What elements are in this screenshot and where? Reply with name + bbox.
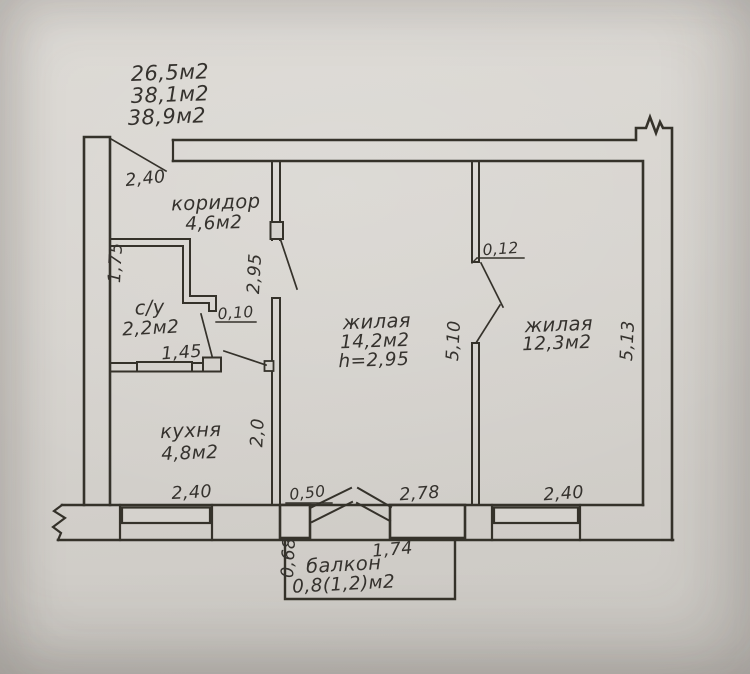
dim-entry-width: 2,40 <box>124 167 166 191</box>
kitchen-door-leaf <box>224 351 266 365</box>
living2-door-leaf-a <box>481 263 503 307</box>
living2-area: 12,3м2 <box>522 332 592 355</box>
dim-living1-depth: 5,10 <box>443 320 465 362</box>
top-wall-outer <box>173 117 672 540</box>
dim-bathroom-left: 1,75 <box>105 242 127 284</box>
dim-kitchen-depth: 2,0 <box>247 418 268 448</box>
living2-door-leaf-b <box>476 305 500 343</box>
dim-balcony-width: 1,74 <box>371 538 413 561</box>
living2-window-sill <box>494 508 578 524</box>
bathroom-door-leaf <box>201 314 212 356</box>
dim-partition-012: 0,12 <box>482 239 519 259</box>
floor-plan-drawing: 26,5м2 38,1м2 38,9м2 коридор 4,6м2 с/у 2… <box>0 0 750 674</box>
bathroom-name: с/у <box>134 295 165 320</box>
kitchen-name: кухня <box>160 418 222 443</box>
partition-right-upper <box>472 161 479 262</box>
living1-ceiling-height: h=2,95 <box>338 349 410 372</box>
dim-bathroom-width: 1,45 <box>161 342 203 365</box>
kitchen-window-sill <box>122 508 210 524</box>
dim-kitchen-window: 2,40 <box>171 482 213 504</box>
balcony-pier-left <box>280 505 310 538</box>
dim-living2-window: 2,40 <box>543 483 585 506</box>
dim-partition-010: 0,10 <box>217 303 254 323</box>
dim-living2-depth: 5,13 <box>617 320 639 362</box>
dim-balcony-block: 2,78 <box>399 483 441 506</box>
entry-door-leaf <box>111 139 166 171</box>
balcony-pier-right <box>390 505 465 538</box>
partition-mid-lower <box>272 298 280 505</box>
corridor-name: коридор <box>171 189 261 215</box>
partition-right-lower <box>472 343 479 505</box>
balcony-area: 0,8(1,2)м2 <box>292 571 396 597</box>
kitchen-area: 4,8м2 <box>161 442 219 465</box>
left-wall <box>84 137 110 505</box>
living1-door-leaf <box>281 241 297 289</box>
floor-plan-photo: 26,5м2 38,1м2 38,9м2 коридор 4,6м2 с/у 2… <box>0 0 750 674</box>
bathroom-area: 2,2м2 <box>122 317 180 341</box>
bathroom-door-pier <box>203 358 221 372</box>
dim-pier-width: 0,50 <box>289 482 327 504</box>
bottom-left-break <box>53 505 65 540</box>
corridor-area: 4,6м2 <box>185 212 243 235</box>
dim-balcony-depth: 0,68 <box>278 537 300 579</box>
kitchen-door-pier <box>265 361 274 371</box>
summary-area-3: 38,9м2 <box>127 103 206 130</box>
partition-mid-pier <box>271 222 284 239</box>
dim-corridor-depth: 2,95 <box>244 253 266 295</box>
